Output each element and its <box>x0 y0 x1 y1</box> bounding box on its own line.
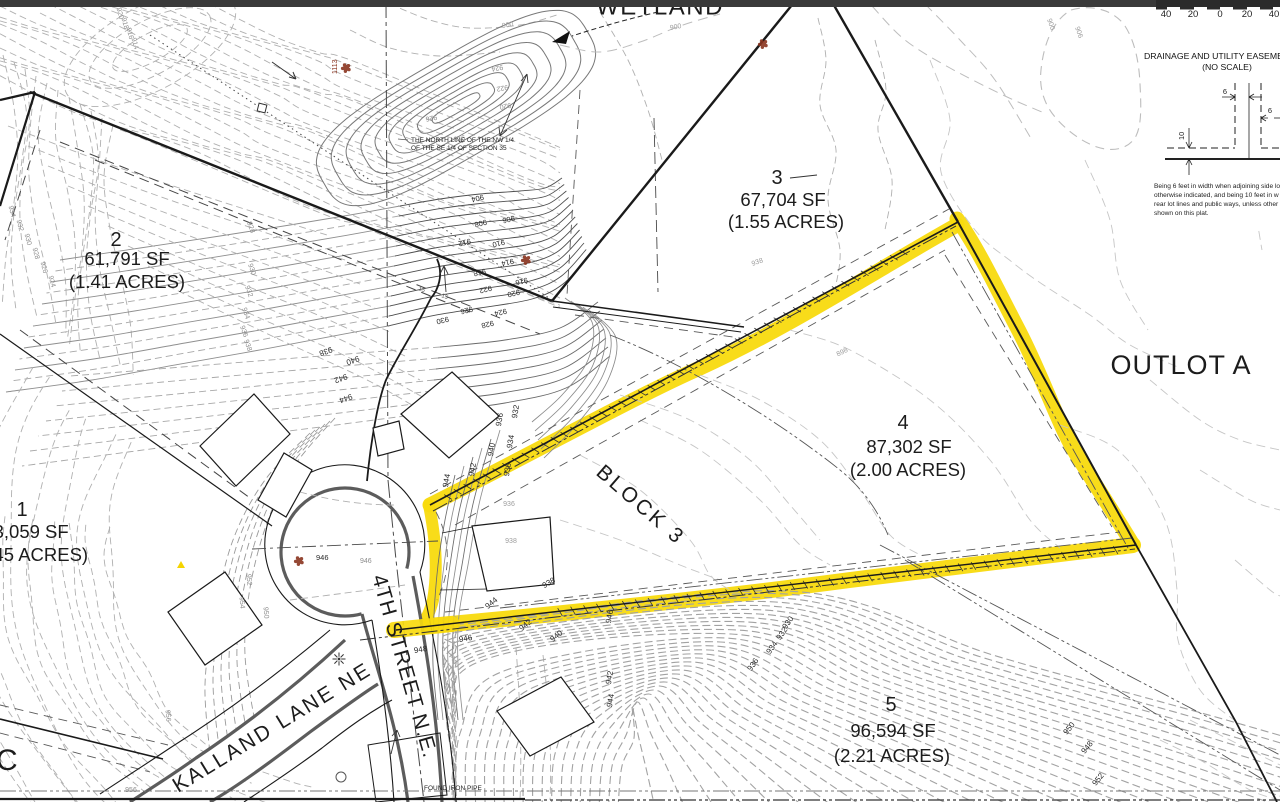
svg-text:6: 6 <box>1268 106 1272 115</box>
svg-text:otherwise indicated, and being: otherwise indicated, and being 10 feet i… <box>1154 192 1279 199</box>
svg-text:952: 952 <box>244 574 252 586</box>
svg-text:3: 3 <box>771 167 782 189</box>
svg-text:C: C <box>0 744 18 777</box>
svg-text:938: 938 <box>505 538 517 545</box>
svg-text:956: 956 <box>163 710 171 722</box>
svg-text:10: 10 <box>1177 132 1186 140</box>
svg-text:0: 0 <box>1217 9 1222 20</box>
svg-text:87,302 SF: 87,302 SF <box>866 436 951 457</box>
svg-text:946: 946 <box>316 553 329 562</box>
svg-text:936: 936 <box>503 501 515 508</box>
svg-text:(NO SCALE): (NO SCALE) <box>1202 62 1252 72</box>
svg-text:20: 20 <box>1188 9 1199 20</box>
svg-text:4: 4 <box>897 412 908 434</box>
svg-text:1113: 1113 <box>332 59 339 74</box>
svg-text:20: 20 <box>1242 9 1253 20</box>
svg-text:(2.21 ACRES): (2.21 ACRES) <box>834 745 950 766</box>
svg-text:(1.45 ACRES): (1.45 ACRES) <box>0 544 88 565</box>
svg-text:(1.55 ACRES): (1.55 ACRES) <box>728 211 844 232</box>
svg-text:954: 954 <box>237 597 245 609</box>
svg-text:OUTLOT A: OUTLOT A <box>1110 350 1251 380</box>
svg-text:96,594 SF: 96,594 SF <box>850 720 935 741</box>
svg-text:40: 40 <box>1161 9 1172 20</box>
svg-text:6: 6 <box>1223 87 1227 96</box>
svg-text:Being 6 feet in width when adj: Being 6 feet in width when adjoining sid… <box>1154 183 1280 190</box>
svg-text:(1.41 ACRES): (1.41 ACRES) <box>69 271 185 292</box>
svg-text:67,704 SF: 67,704 SF <box>740 189 825 210</box>
svg-text:DRAINAGE AND UTILITY EASEMENTS: DRAINAGE AND UTILITY EASEMENTS <box>1144 51 1280 61</box>
svg-text:956: 956 <box>125 787 137 794</box>
svg-text:FOUND IRON PIPE: FOUND IRON PIPE <box>424 785 482 792</box>
svg-text:40: 40 <box>1269 9 1280 20</box>
svg-text:shown on this plat.: shown on this plat. <box>1154 210 1209 217</box>
svg-text:5: 5 <box>885 694 896 716</box>
svg-text:946: 946 <box>360 558 372 565</box>
svg-text:OF THE SE 1/4 OF SECTION 35: OF THE SE 1/4 OF SECTION 35 <box>411 145 507 152</box>
svg-text:63,059 SF: 63,059 SF <box>0 521 69 542</box>
svg-text:(2.00 ACRES): (2.00 ACRES) <box>850 459 966 480</box>
svg-text:rear lot lines and public ways: rear lot lines and public ways, unless o… <box>1154 201 1279 208</box>
svg-text:1: 1 <box>16 499 27 521</box>
svg-text:61,791 SF: 61,791 SF <box>84 248 169 269</box>
svg-text:950: 950 <box>261 607 269 619</box>
